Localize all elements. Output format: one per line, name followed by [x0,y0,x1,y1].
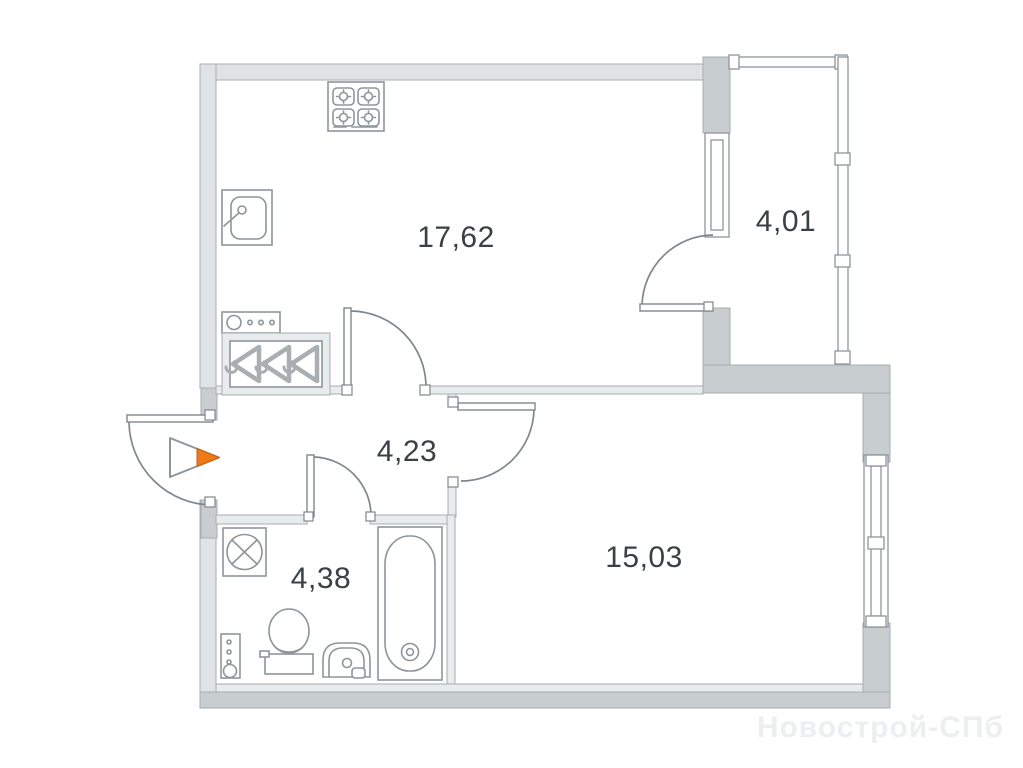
wall-bottom [200,692,890,708]
burner-icon [333,109,354,126]
balcony-door-swing-arc [642,235,713,305]
bedroom-window [864,455,888,627]
wall-top [200,64,710,80]
window-balcony-top [730,57,838,67]
bathroom-door-swing-arc [314,457,371,515]
balcony-door [640,235,713,311]
floor-plan-page: 17,62 4,01 4,23 15,03 4,38 Новострой-СПб [0,0,1023,768]
room-label-kitchen-living: 17,62 [417,221,495,254]
living-room-door [342,308,430,395]
bathtub-icon [378,527,442,680]
glazing-cap [729,55,739,69]
window-balcony-right [838,57,848,357]
room-label-bedroom: 15,03 [605,541,683,574]
wall-bath-bedroom [447,515,455,692]
floor-plan: 17,62 4,01 4,23 15,03 4,38 Новострой-СПб [0,0,1023,768]
watermark: Новострой-СПб [757,711,1004,744]
room-label-bathroom: 4,38 [291,562,351,595]
door-jamb [205,410,215,420]
wardrobe-hangers-icon [222,333,330,395]
living-door-swing-arc [351,311,426,387]
wall-bath-top-right [370,515,447,524]
room-label-balcony: 4,01 [756,205,816,238]
door-jamb [448,477,458,487]
wall-bedroom-right-lower [863,623,890,692]
door-jamb [205,497,215,507]
glazing-mullion [835,153,850,165]
wall-bedroom-right-upper [863,393,890,462]
burner-icon [358,88,379,105]
door-jamb [304,512,313,521]
entrance-arrow-icon [170,438,219,477]
wall-balcony-partition-bottom [703,308,730,365]
bathroom-door-leaf [307,455,314,517]
door-jamb [366,512,375,521]
entrance-door-leaf [127,415,213,422]
living-door-leaf [344,308,351,388]
glazing-cap [866,455,886,466]
toilet-icon [260,609,313,674]
kitchen-sink-icon [222,190,272,245]
burner-icon [333,88,354,105]
bedroom-door-swing-arc [461,410,534,481]
towel-rail-icon [221,634,240,678]
kitchen-washing-machine-icon [222,312,280,333]
room-label-hallway: 4,23 [377,435,437,468]
door-jamb [704,302,713,311]
bedroom-door-leaf [458,403,535,410]
window-living-balcony-pane [711,140,723,230]
burner-icon [358,109,379,126]
bathroom-sink-icon [323,643,370,678]
wall-bath-top-left [216,515,307,524]
glazing-mullion [868,537,884,549]
wall-bottom-inner [216,684,863,692]
bedroom-door [448,397,535,487]
door-jamb [342,385,352,395]
inner-partitions [216,386,863,692]
door-jamb [420,385,430,395]
wall-balcony-bottom [703,365,890,393]
wall-balcony-partition-top [703,57,730,133]
balcony-door-leaf [640,304,712,311]
wall-left-upper [200,64,216,388]
bathroom-washing-machine-icon [223,528,266,576]
wall-living-hall-right [425,386,703,394]
stove-icon [328,82,384,131]
door-jamb [448,397,458,407]
bathroom-door [304,455,375,521]
glazing-cap [835,351,850,364]
glazing-cap [866,616,886,627]
glazing-mullion [835,255,850,267]
